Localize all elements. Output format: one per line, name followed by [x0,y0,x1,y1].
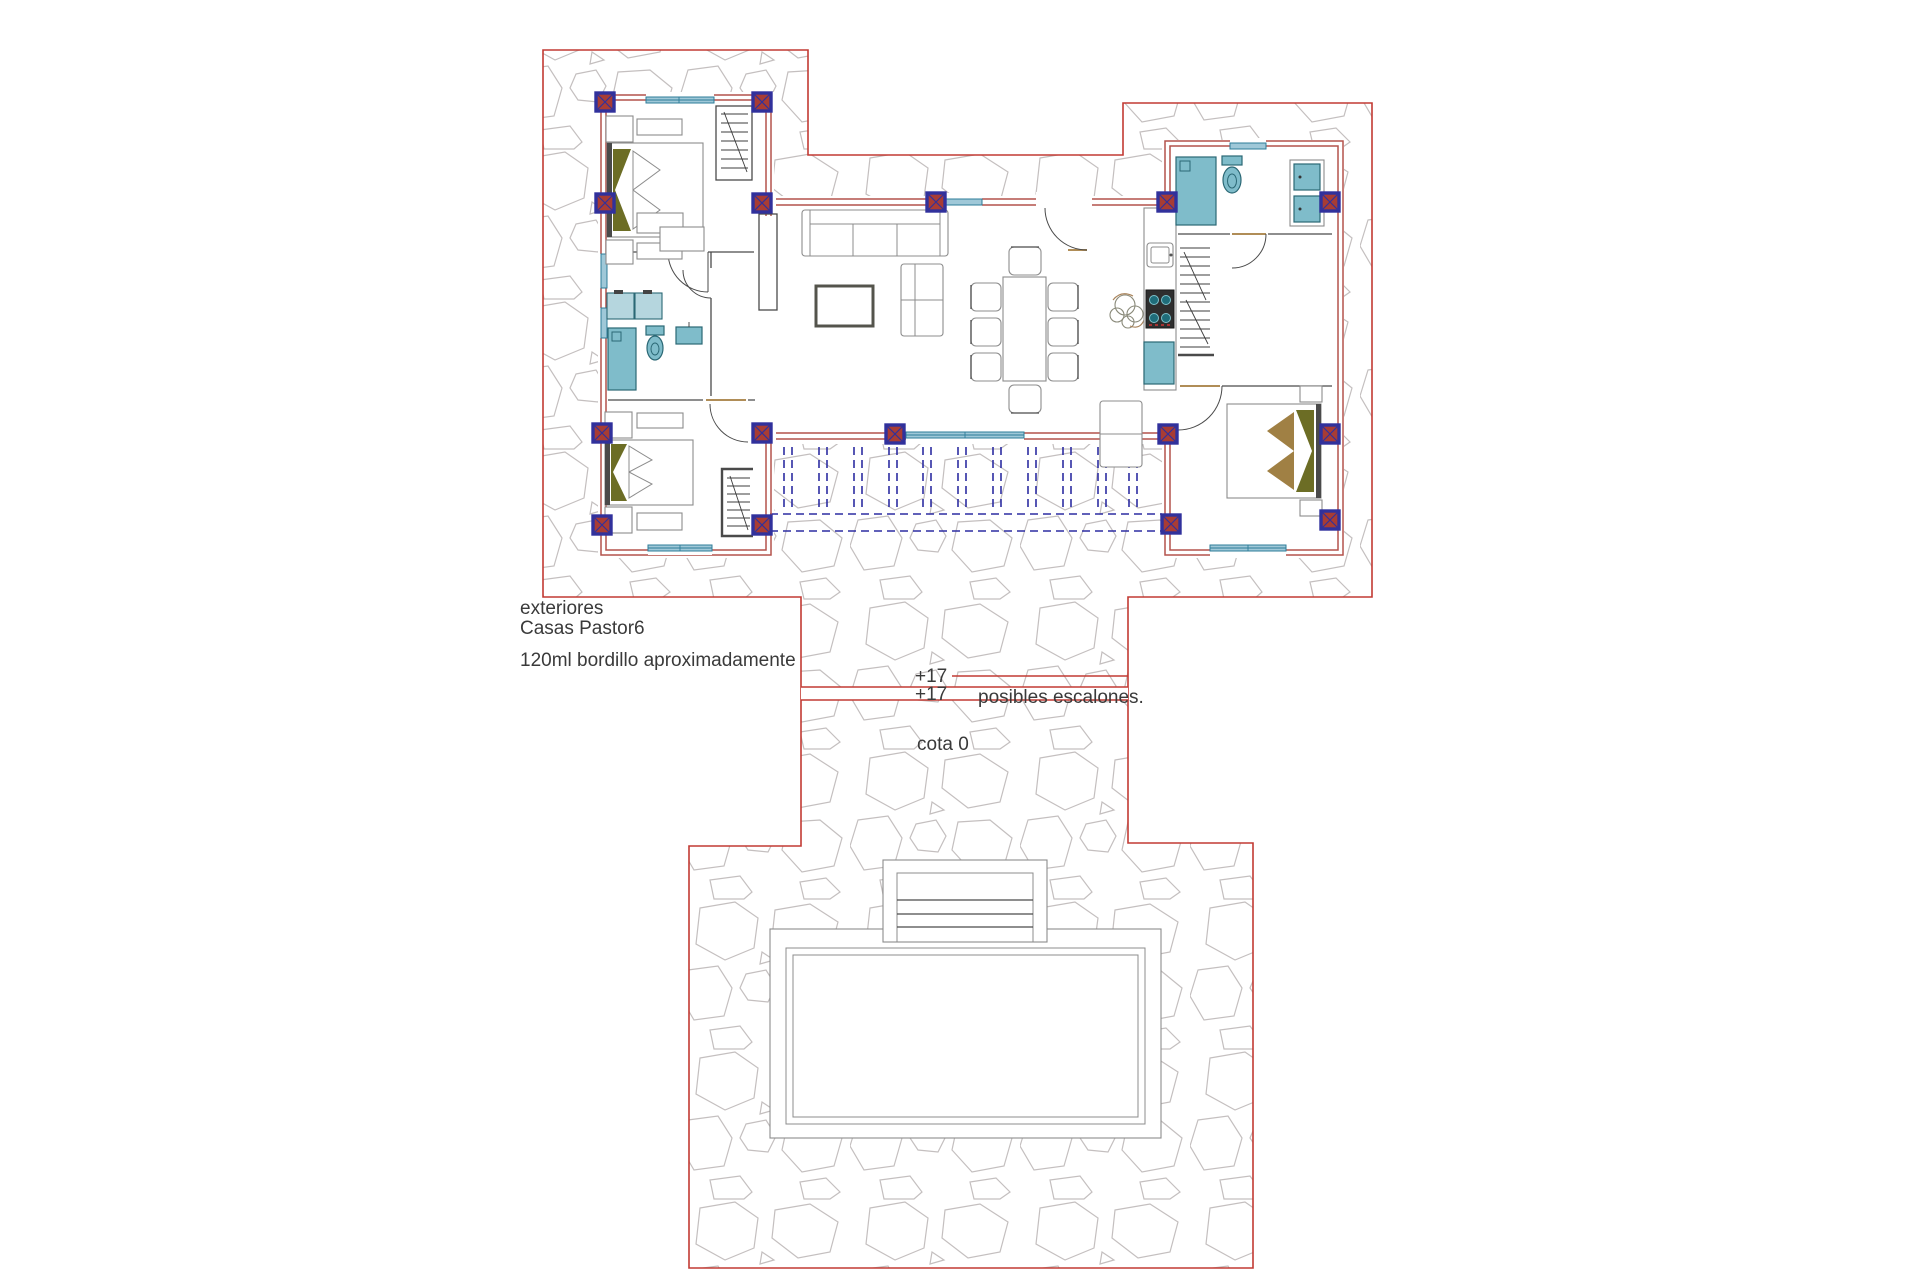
basin [676,327,702,344]
base-cabinet [1144,342,1174,384]
vanity-sink [635,293,662,319]
dining-table [1003,277,1046,381]
nightstand [606,116,633,142]
label-level-bottom: +17 [915,684,947,705]
vanity [1290,160,1324,226]
pool-steps-outer [883,860,1047,942]
nightstand [1300,386,1322,402]
kitchen-sink [1147,243,1173,267]
dresser [637,413,683,428]
nightstand [1300,500,1322,516]
bedroom-3 [1227,386,1322,516]
sofa-small [1100,401,1142,467]
label-project-name: Casas Pastor6 [520,618,645,639]
stove [1146,290,1174,328]
label-curb-note: 120ml bordillo aproximadamente [520,650,796,671]
dresser [637,119,682,135]
window-bedroom2-bottom [648,541,712,555]
label-exteriores: exteriores [520,598,603,619]
headboard [1316,404,1321,498]
toilet [1222,156,1242,193]
label-steps-note: posibles escalones. [978,687,1144,708]
headboard [605,440,610,505]
toilet [646,326,664,360]
armchair [901,264,943,336]
sofa-large [802,210,948,256]
pool-deck [770,929,1161,1138]
dresser [637,513,682,530]
window-living-top [946,193,982,209]
window-bedroom3-bottom [1210,541,1286,556]
floor-plan-canvas: exteriores Casas Pastor6 120ml bordillo … [0,0,1920,1280]
window-bathroom2-top [1230,138,1266,153]
headboard [607,143,612,237]
vanity-sink [607,293,634,319]
floor-plan-drawing: exteriores Casas Pastor6 120ml bordillo … [0,0,1920,1280]
coffee-table [816,286,873,326]
label-datum: cota 0 [917,734,969,755]
window-bedroom1-top [646,93,714,107]
nightstand [606,240,633,264]
window-living-bottom [906,427,1024,443]
bench [660,227,704,251]
shower [1176,157,1216,225]
